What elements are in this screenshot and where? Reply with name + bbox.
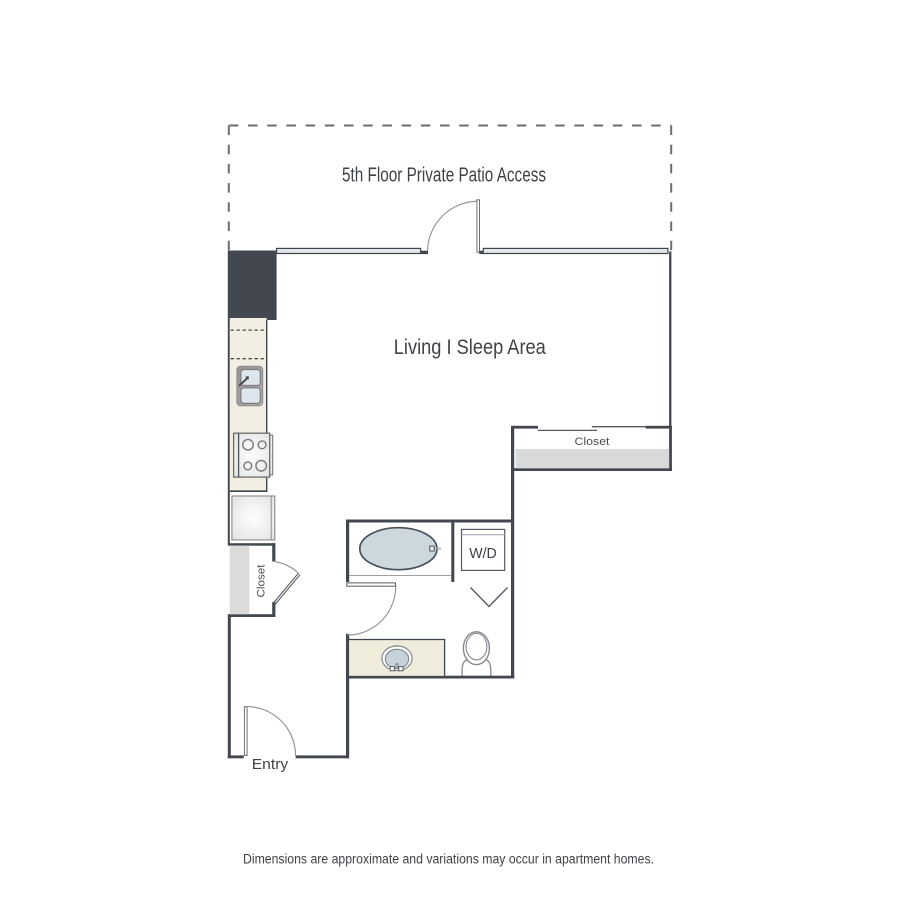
svg-text:5th Floor Private Patio Access: 5th Floor Private Patio Access <box>342 165 546 187</box>
svg-text:Closet: Closet <box>255 565 267 598</box>
svg-text:Entry: Entry <box>252 756 289 773</box>
svg-text:Living I Sleep Area: Living I Sleep Area <box>394 336 546 359</box>
svg-text:W/D: W/D <box>469 545 497 562</box>
svg-text:Dimensions are approximate and: Dimensions are approximate and variation… <box>243 851 654 866</box>
svg-text:Closet: Closet <box>575 436 610 448</box>
